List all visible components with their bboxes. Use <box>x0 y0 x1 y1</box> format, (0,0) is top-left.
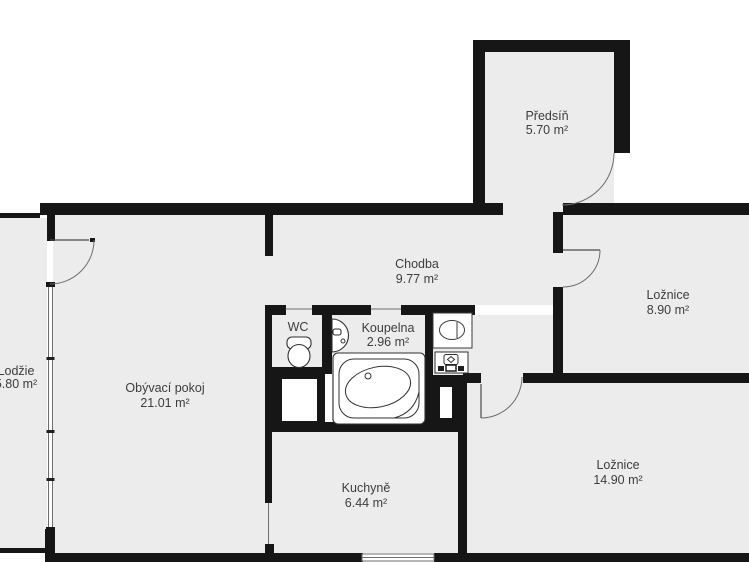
wall-bath-top-b <box>312 305 371 315</box>
wall-hall-left <box>265 215 273 256</box>
label-loznice2-name: Ložnice <box>596 458 639 472</box>
wall-top-left <box>40 203 503 215</box>
wall-doorframe-arm <box>463 373 481 383</box>
wall-left-bottom <box>45 529 55 555</box>
washbasin-counter <box>433 313 472 348</box>
label-wc-name: WC <box>288 320 309 334</box>
wall-predsin-right <box>614 40 630 153</box>
bathtub-outer <box>333 353 425 424</box>
washbasin-icon <box>433 313 472 348</box>
washer-knob-left <box>438 366 444 371</box>
wall-lodzie-bottom <box>0 548 45 553</box>
floor-opening-living-hall <box>265 256 273 305</box>
shaft-a-duct <box>282 379 317 421</box>
label-koupelna-area: 2.96 m² <box>367 335 409 349</box>
toilet-bowl <box>288 345 310 368</box>
floor-plan: Předsíň 5.70 m² Chodba 9.77 m² Ložnice 8… <box>0 0 749 562</box>
label-obyvaci-area: 21.01 m² <box>140 396 189 410</box>
label-kuchyne-area: 6.44 m² <box>345 496 387 510</box>
floor-opening-koupelna <box>371 305 401 315</box>
window-left-tick-2 <box>47 430 55 433</box>
wall-window-cap-top <box>46 282 55 287</box>
toilet-icon <box>287 337 311 368</box>
label-kuchyne-name: Kuchyně <box>342 481 391 495</box>
wall-loznice1-left-bottom <box>553 287 563 374</box>
label-predsin-area: 5.70 m² <box>526 123 568 137</box>
label-chodba-area: 9.77 m² <box>396 272 438 286</box>
label-predsin-name: Předsíň <box>525 109 568 123</box>
floor-chodba-strip <box>475 315 553 374</box>
label-chodba-name: Chodba <box>395 257 439 271</box>
label-loznice1-area: 8.90 m² <box>647 303 689 317</box>
floor-plan-drawing: Předsíň 5.70 m² Chodba 9.77 m² Ložnice 8… <box>0 0 749 562</box>
wall-bath-right <box>425 306 433 376</box>
wall-predsin-left <box>473 40 485 215</box>
floor-opening-loznice-1 <box>553 253 563 287</box>
wall-bedroom-divider <box>523 373 749 383</box>
washing-machine-icon <box>435 352 468 373</box>
corner-bathtub-icon <box>333 353 425 424</box>
shaft-b-duct <box>440 387 452 418</box>
wall-bath-top-a <box>265 305 286 315</box>
washer-knob-right <box>458 366 464 371</box>
wall-bottom-right <box>434 553 749 562</box>
floor-opening-loznice-2 <box>480 373 523 383</box>
wall-kuchyne-left-stub <box>265 544 274 553</box>
wall-lodzie-top <box>0 213 40 218</box>
label-koupelna-name: Koupelna <box>362 321 415 335</box>
label-lodzie-name: Lodžie <box>0 364 34 378</box>
wall-loznice1-left-top <box>553 212 563 253</box>
wall-wc-divider <box>322 315 332 374</box>
wall-kuchyne-left <box>265 432 272 503</box>
label-obyvaci-name: Obývací pokoj <box>125 381 204 395</box>
floor-opening-wc <box>285 305 312 315</box>
label-loznice1-name: Ložnice <box>646 288 689 302</box>
window-left-tick-3 <box>47 478 55 481</box>
wall-predsin-top <box>473 40 630 52</box>
wall-kuchyne-right <box>458 432 467 553</box>
wall-bottom-left <box>45 553 363 562</box>
window-left-tick-1 <box>47 357 55 360</box>
wall-left-top <box>47 203 55 241</box>
sink-tap <box>333 329 341 335</box>
label-loznice2-area: 14.90 m² <box>593 473 642 487</box>
label-lodzie-area: 5.80 m² <box>0 377 37 391</box>
wall-top-right <box>563 203 749 215</box>
